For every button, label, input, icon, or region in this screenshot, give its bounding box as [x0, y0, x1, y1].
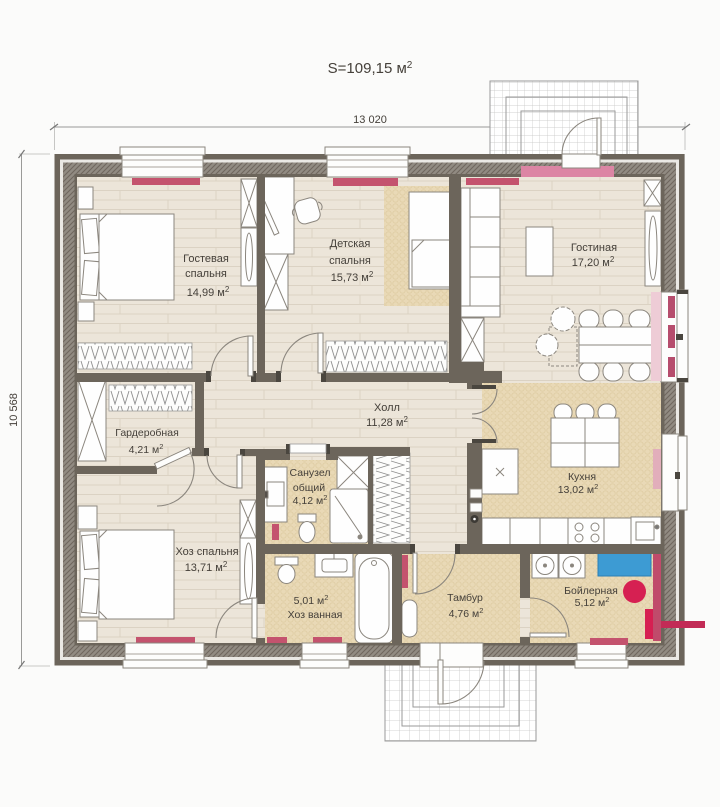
svg-text:13 020: 13 020: [353, 114, 387, 126]
svg-text:17,20 м2: 17,20 м2: [572, 255, 615, 269]
svg-text:13,71 м2: 13,71 м2: [185, 560, 228, 574]
svg-text:10 568: 10 568: [8, 393, 20, 427]
svg-text:Тамбур: Тамбур: [447, 592, 483, 604]
svg-text:4,21 м2: 4,21 м2: [129, 442, 164, 456]
svg-text:14,99 м2: 14,99 м2: [187, 285, 230, 299]
svg-text:11,28 м2: 11,28 м2: [366, 415, 408, 429]
svg-text:S=109,15 м2: S=109,15 м2: [328, 60, 413, 77]
svg-text:Гостиная: Гостиная: [571, 242, 617, 254]
svg-text:Детская: Детская: [330, 238, 371, 250]
svg-text:спальня: спальня: [185, 268, 227, 280]
svg-text:спальня: спальня: [329, 255, 371, 267]
svg-text:Бойлерная: Бойлерная: [564, 585, 618, 597]
svg-text:общий: общий: [293, 482, 325, 494]
svg-text:Хоз спальня: Хоз спальня: [175, 546, 238, 558]
svg-text:4,12 м2: 4,12 м2: [293, 493, 328, 507]
svg-text:Кухня: Кухня: [568, 471, 596, 483]
svg-text:Гостевая: Гостевая: [183, 253, 229, 265]
svg-text:Санузел: Санузел: [290, 467, 331, 479]
svg-text:5,01 м2: 5,01 м2: [294, 593, 329, 607]
svg-text:Гардеробная: Гардеробная: [115, 427, 179, 439]
svg-text:15,73 м2: 15,73 м2: [331, 270, 374, 284]
svg-text:Хоз ванная: Хоз ванная: [288, 609, 343, 621]
svg-text:4,76 м2: 4,76 м2: [449, 606, 484, 620]
svg-text:5,12 м2: 5,12 м2: [575, 595, 610, 609]
svg-text:Холл: Холл: [374, 402, 400, 414]
svg-text:13,02 м2: 13,02 м2: [558, 482, 599, 496]
